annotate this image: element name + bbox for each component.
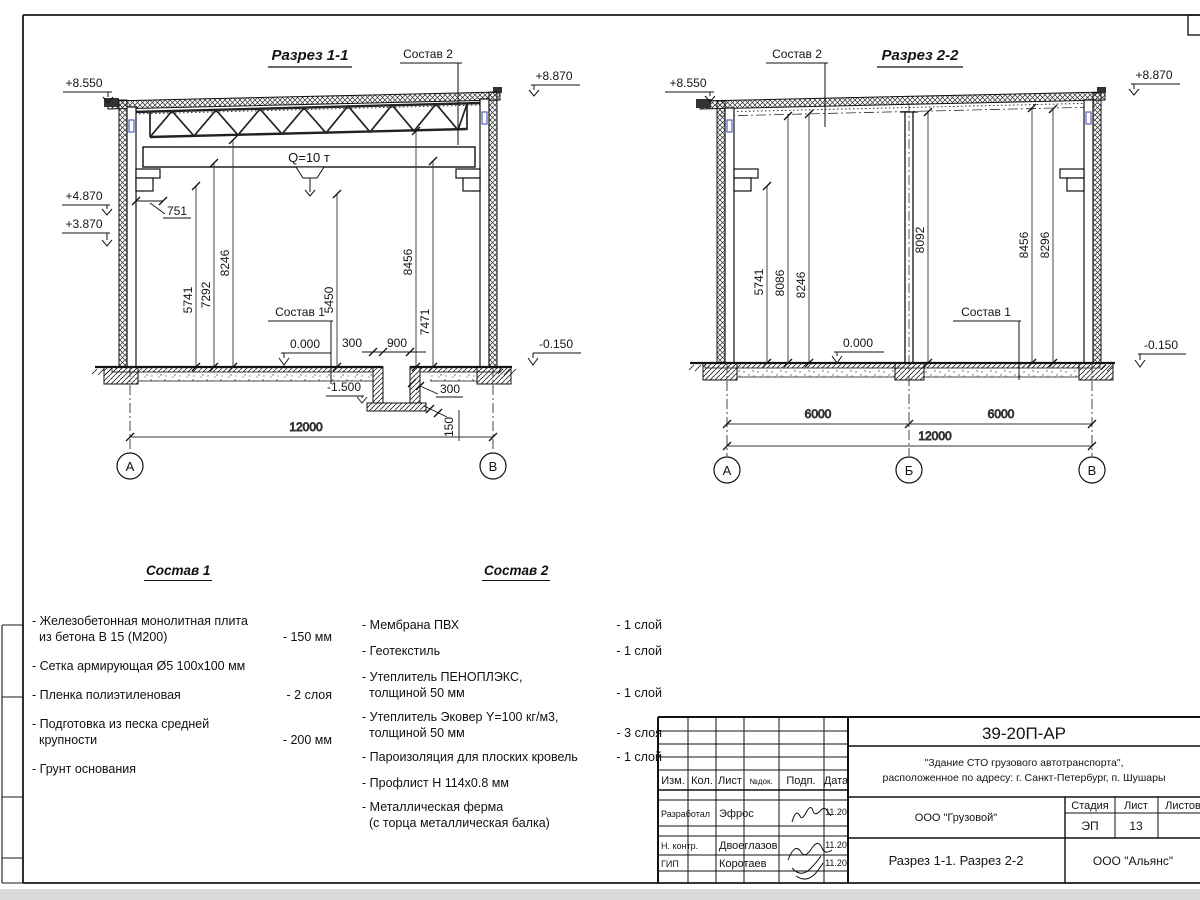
- axis-markers: А В: [117, 453, 506, 479]
- axis-label: А: [126, 459, 135, 474]
- floor-2: [689, 363, 1115, 380]
- wall-left: [717, 101, 725, 363]
- drawing-title: Разрез 1-1. Разрез 2-2: [889, 853, 1024, 868]
- doc-number: 39-20П-АР: [982, 724, 1066, 743]
- item-text: - Утеплитель ПЕНОПЛЭКС,: [362, 670, 522, 684]
- list-item: - Металлическая ферма (с торца металличе…: [362, 799, 662, 831]
- person-name: Эфрос: [719, 808, 754, 820]
- zero-level-mark: 0.000: [832, 336, 884, 363]
- list-item: - Утеплитель ПЕНОПЛЭКС, толщиной 50 мм -…: [362, 669, 662, 701]
- item-qty: - 200 мм: [279, 732, 332, 748]
- person-name: Двоеглазов: [719, 840, 778, 852]
- column-left: [127, 107, 136, 367]
- list-item: - Пароизоляция для плоских кровель - 1 с…: [362, 749, 662, 765]
- stage-value: ЭП: [1081, 819, 1098, 833]
- dimension-label: 8092: [913, 226, 927, 253]
- section-title: Разрез 2-2: [881, 47, 959, 64]
- dimension-label: 300: [342, 336, 362, 350]
- item-qty: - 1 слой: [612, 749, 662, 765]
- ground-level-mark: -0.150: [528, 337, 581, 365]
- item-text: - Грунт основания: [32, 761, 136, 777]
- dimension-label: 12000: [918, 429, 952, 443]
- item-qty: - 1 слой: [612, 685, 662, 701]
- dimension-label: 6000: [988, 407, 1015, 421]
- role: ГИП: [661, 859, 679, 869]
- date: 11.20: [825, 858, 847, 868]
- vertical-dim-labels: 5741 8086 8246 8092 8456 8296: [752, 226, 1052, 298]
- item-text: - Мембрана ПВХ: [362, 617, 459, 633]
- sostav1-title: Состав 1: [144, 563, 212, 581]
- elevation-label: 0.000: [843, 336, 873, 350]
- item-text2: (с торца металлическая балка): [362, 815, 550, 831]
- col-podp: Подп.: [786, 775, 815, 787]
- column-right: [1084, 100, 1093, 363]
- section-2-2: Разрез 2-2 Состав 2 Состав 1: [665, 47, 1186, 483]
- dimension-label: 8086: [773, 269, 787, 296]
- vertical-dims: [763, 104, 1057, 367]
- company-name: ООО "Альянс": [1093, 854, 1173, 868]
- dimension-label: 7471: [418, 308, 432, 335]
- axis-label: В: [489, 459, 498, 474]
- list-item: - Грунт основания: [32, 761, 332, 777]
- sostav1-list: Состав 1 - Железобетонная монолитная пли…: [32, 563, 332, 777]
- list-item: - Геотекстиль - 1 слой: [362, 643, 662, 659]
- pit-dims: 300 900 300 -1.500 150: [326, 336, 463, 441]
- stamp-rows: Разработал Эфрос 11.20 Н. контр. Двоегла…: [661, 807, 847, 879]
- elevation-label: +4.870: [65, 189, 102, 203]
- col-izm: Изм.: [661, 775, 685, 787]
- dimension-label: 5741: [181, 286, 195, 313]
- section-1-1: Разрез 1-1 Q=10 т: [62, 47, 581, 479]
- date: 11.20: [825, 840, 847, 850]
- section-title: Разрез 1-1: [271, 47, 348, 64]
- title-block: 39-20П-АР "Здание СТО грузового автотран…: [658, 717, 1200, 883]
- item-text: - Подготовка из песка средней: [32, 717, 209, 731]
- item-qty: - 1 слой: [612, 617, 662, 633]
- item-text: - Профлист Н 114х0.8 мм: [362, 775, 509, 791]
- vertical-dim-labels: 5741 7292 8246 5450 8456 7471: [181, 248, 432, 335]
- list-item: - Мембрана ПВХ - 1 слой: [362, 617, 662, 633]
- axis-label: А: [723, 463, 732, 478]
- dimension-label: 6000: [805, 407, 832, 421]
- item-text2: из бетона В 15 (М200): [32, 629, 248, 645]
- elevation-label: +8.870: [535, 69, 572, 83]
- col-data: Дата: [824, 775, 849, 787]
- dimension-label: 5741: [752, 268, 766, 295]
- dimension-label: 900: [387, 336, 407, 350]
- column-right: [480, 99, 489, 367]
- elevation-label: -0.150: [539, 337, 573, 351]
- dimension-label: 8246: [218, 249, 232, 276]
- elevation-label: -1.500: [327, 380, 361, 394]
- sostav2-callout: Состав 2: [403, 47, 453, 61]
- item-qty: - 1 слой: [612, 643, 662, 659]
- wall-right: [489, 92, 497, 367]
- dim-751: 751: [132, 197, 191, 218]
- item-text2: толщиной 50 мм: [362, 725, 558, 741]
- item-text: - Утеплитель Эковер Y=100 кг/м3,: [362, 710, 558, 724]
- sostav2-list: Состав 2 - Мембрана ПВХ - 1 слой - Геоте…: [362, 563, 662, 831]
- item-text: - Пароизоляция для плоских кровель: [362, 749, 578, 765]
- list-item: - Пленка полиэтиленовая - 2 слоя: [32, 687, 332, 703]
- wall-left: [119, 100, 127, 367]
- sostav2-callout: Состав 2: [772, 47, 822, 61]
- zero-level-mark: 0.000: [279, 337, 331, 365]
- project-name-line1: "Здание СТО грузового автотранспорта",: [924, 757, 1123, 769]
- dimension-label: 751: [167, 204, 187, 218]
- item-qty: - 3 слоя: [613, 725, 662, 741]
- sheet-label: Лист: [1124, 800, 1148, 812]
- dimension-label: 7292: [199, 281, 213, 308]
- project-name-line2: расположенное по адресу: г. Санкт-Петерб…: [883, 772, 1166, 784]
- roof-truss: [134, 103, 481, 137]
- col-dok: №док.: [749, 777, 772, 786]
- drawing-sheet: { "s1": { "title": "Разрез 1-1", "sostav…: [0, 0, 1200, 900]
- sostav1-callout: Состав 1: [275, 305, 325, 319]
- item-text: - Геотекстиль: [362, 643, 440, 659]
- item-text: - Железобетонная монолитная плита: [32, 614, 248, 628]
- dimension-label: 8246: [794, 271, 808, 298]
- list-item: - Железобетонная монолитная плита из бет…: [32, 613, 332, 645]
- page-edge: [0, 889, 1200, 900]
- dimension-label: 300: [440, 382, 460, 396]
- col-list: Лист: [718, 775, 742, 787]
- dimension-label: 8296: [1038, 231, 1052, 258]
- item-qty: - 2 слоя: [283, 687, 332, 703]
- dimension-label: 12000: [289, 420, 323, 434]
- stamp-header-row: Изм. Кол. Лист №док. Подп. Дата: [661, 775, 849, 787]
- list-item: - Сетка армирующая Ø5 100х100 мм: [32, 658, 332, 674]
- column-left: [725, 108, 734, 363]
- sostav2-title: Состав 2: [482, 563, 550, 581]
- wall-right: [1093, 93, 1101, 363]
- axis-label: В: [1088, 463, 1097, 478]
- axis-label: Б: [905, 463, 914, 478]
- sostav1-callout: Состав 1: [961, 305, 1011, 319]
- corner-stamp-box: [1188, 15, 1200, 35]
- item-text2: толщиной 50 мм: [362, 685, 522, 701]
- left-margin-boxes: [2, 625, 23, 883]
- crane-capacity-label: Q=10 т: [288, 150, 330, 165]
- person-name: Коротаев: [719, 858, 767, 870]
- elevation-label: 0.000: [290, 337, 320, 351]
- roof-right-cap: [1097, 87, 1106, 93]
- sheet-number: 13: [1129, 819, 1143, 833]
- ground-level-mark: -0.150: [1135, 338, 1186, 367]
- roof-slab: [700, 92, 1105, 109]
- dimension-label: 8456: [401, 248, 415, 275]
- list-item: - Утеплитель Эковер Y=100 кг/м3, толщино…: [362, 709, 662, 741]
- item-text2: крупности: [32, 732, 209, 748]
- elevation-label: +8.870: [1135, 68, 1172, 82]
- role: Разработал: [661, 809, 710, 819]
- crane-hook: [296, 167, 324, 196]
- client-name: ООО "Грузовой": [915, 812, 997, 824]
- role: Н. контр.: [661, 841, 698, 851]
- elevation-label: +3.870: [65, 217, 102, 231]
- dimension-label: 8456: [1017, 231, 1031, 258]
- col-kol: Кол.: [691, 775, 713, 787]
- dimension-label: 150: [442, 417, 456, 437]
- sheets-label: Листов: [1165, 800, 1200, 812]
- item-text: - Пленка полиэтиленовая: [32, 687, 181, 703]
- elevation-label: +8.550: [65, 76, 102, 90]
- list-item: - Подготовка из песка средней крупности …: [32, 716, 332, 748]
- elevation-label: -0.150: [1144, 338, 1178, 352]
- item-text: - Сетка армирующая Ø5 100х100 мм: [32, 658, 245, 674]
- item-qty: - 150 мм: [279, 629, 332, 645]
- list-item: - Профлист Н 114х0.8 мм: [362, 775, 662, 791]
- elevation-label: +8.550: [669, 76, 706, 90]
- item-text: - Металлическая ферма: [362, 800, 503, 814]
- stage-label: Стадия: [1071, 800, 1109, 812]
- axis-markers: А Б В: [714, 457, 1105, 483]
